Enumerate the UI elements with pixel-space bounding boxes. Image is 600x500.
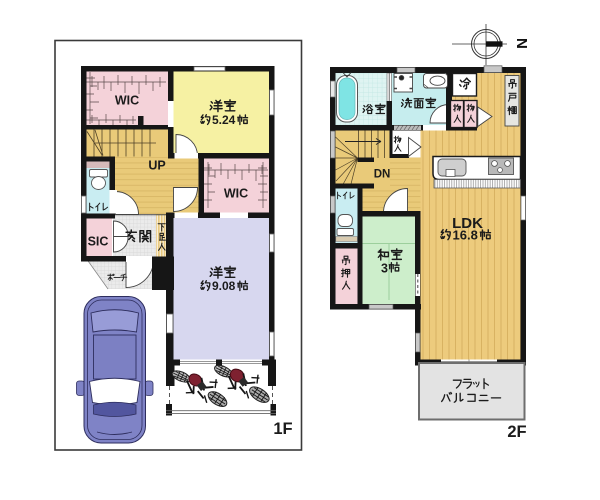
svg-text:16.8: 16.8 [453, 228, 478, 243]
svg-text:3: 3 [381, 262, 388, 276]
svg-text:WIC: WIC [224, 187, 248, 201]
svg-text:UP: UP [148, 159, 165, 173]
svg-text:N: N [513, 38, 530, 49]
svg-text:1F: 1F [273, 420, 292, 438]
svg-text:SIC: SIC [88, 235, 109, 249]
svg-text:DN: DN [374, 169, 391, 181]
svg-text:9.08: 9.08 [212, 279, 236, 293]
svg-text:5.24: 5.24 [212, 113, 236, 127]
svg-text:2F: 2F [507, 423, 526, 441]
svg-text:WIC: WIC [115, 94, 139, 108]
